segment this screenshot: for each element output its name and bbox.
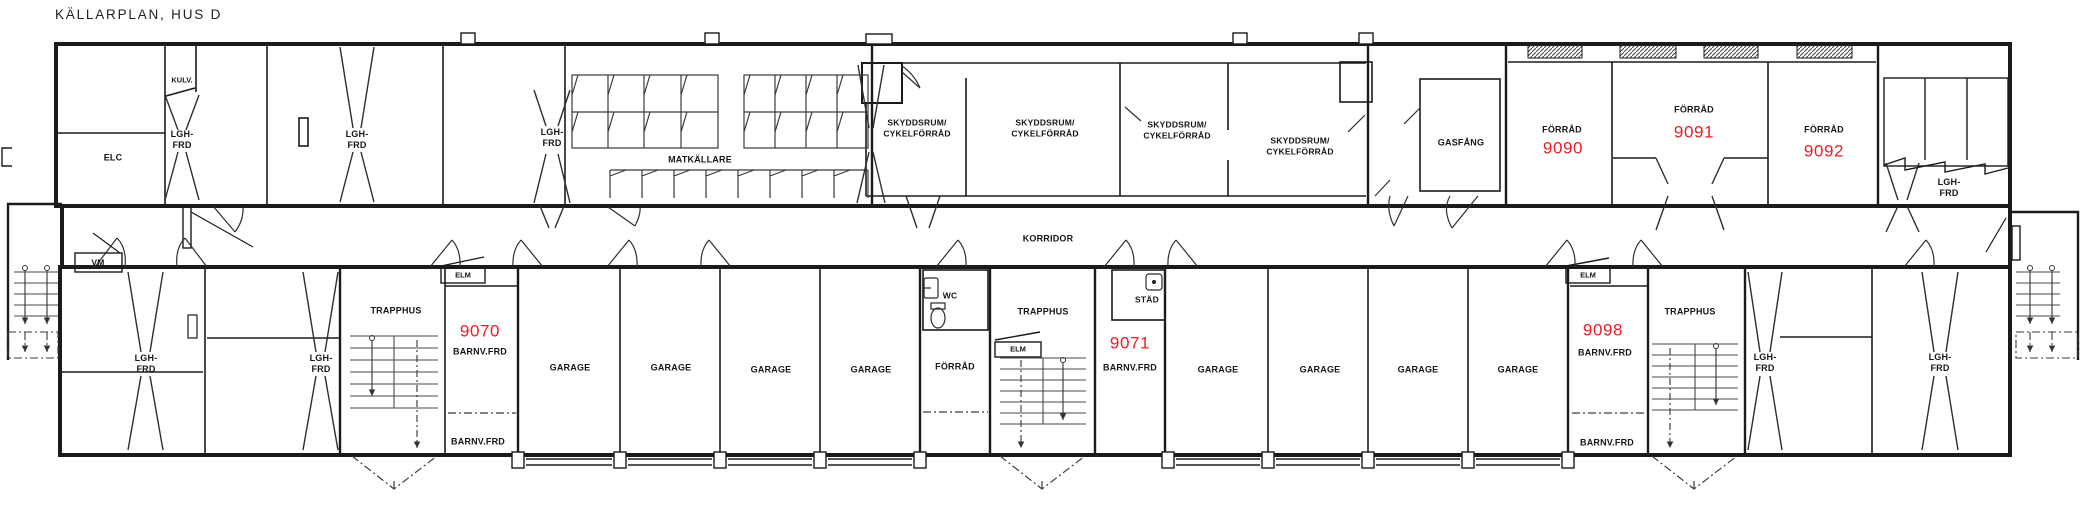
room-label-garage-3: GARAGE	[751, 364, 792, 375]
toilet-icon	[931, 308, 945, 328]
room-label-elc: ELC	[104, 152, 123, 163]
stairs-trapphus-1	[350, 336, 438, 449]
exterior-stairs-left	[8, 204, 62, 360]
room-label-trapphus-2: TRAPPHUS	[1017, 306, 1068, 317]
room-label-vm: VM	[91, 258, 104, 269]
room-label-forrad-9090: FÖRRÅD	[1542, 124, 1582, 135]
room-label-elm-2: ELM	[1010, 344, 1026, 353]
room-label-forrad-mid: FÖRRÅD	[935, 361, 975, 372]
unit-number-9071: 9071	[1110, 335, 1150, 352]
room-label-lgh-frd-2: LGH- FRD	[346, 129, 369, 152]
door-swings-corridor	[95, 238, 1934, 267]
room-label-skyddsrum-2: SKYDDSRUM/ CYKELFÖRRÅD	[1011, 117, 1078, 138]
floor-plan-drawing	[0, 0, 2094, 513]
room-label-elm-1: ELM	[455, 270, 471, 279]
room-label-kulv: KULV.	[171, 75, 192, 84]
room-label-forrad-9092: FÖRRÅD	[1804, 124, 1844, 135]
room-label-garage-4: GARAGE	[851, 364, 892, 375]
room-label-matkallare: MATKÄLLARE	[668, 154, 732, 165]
room-label-barnv-frd-1b: BARNV.FRD	[451, 436, 505, 447]
room-label-lgh-frd-7: LGH- FRD	[1754, 352, 1777, 375]
room-label-gasfang: GASFÅNG	[1438, 137, 1484, 148]
room-label-garage-8: GARAGE	[1498, 364, 1539, 375]
unit-number-9090: 9090	[1543, 140, 1583, 157]
matkallare-compartments	[572, 75, 868, 198]
room-label-lgh-frd-4: LGH- FRD	[1938, 177, 1961, 200]
unit-number-9098: 9098	[1583, 322, 1623, 339]
window-hatch	[1528, 45, 1852, 58]
room-label-skyddsrum-3: SKYDDSRUM/ CYKELFÖRRÅD	[1143, 119, 1210, 140]
room-label-garage-7: GARAGE	[1398, 364, 1439, 375]
entrance-canopies	[352, 456, 1737, 489]
stairs-trapphus-3	[1652, 344, 1738, 449]
room-label-trapphus-1: TRAPPHUS	[370, 305, 421, 316]
room-label-forrad-9091: FÖRRÅD	[1674, 104, 1714, 115]
room-label-skyddsrum-4: SKYDDSRUM/ CYKELFÖRRÅD	[1266, 135, 1333, 156]
room-label-lgh-frd-3: LGH- FRD	[541, 127, 564, 150]
exterior-stairs-right	[2012, 212, 2078, 360]
room-label-trapphus-3: TRAPPHUS	[1664, 306, 1715, 317]
stairs-trapphus-2	[1000, 358, 1086, 449]
floor-plan: KÄLLARPLAN, HUS D KULV. LGH- FRD ELC LGH…	[0, 0, 2094, 513]
room-label-lgh-frd-6: LGH- FRD	[310, 353, 333, 376]
unit-number-9091: 9091	[1674, 124, 1714, 141]
room-label-elm-3: ELM	[1580, 270, 1596, 279]
room-label-wc: WC	[943, 291, 958, 302]
room-label-garage-5: GARAGE	[1198, 364, 1239, 375]
unit-number-9092: 9092	[1804, 143, 1844, 160]
room-label-stad: STÄD	[1135, 295, 1159, 306]
room-label-barnv-frd-9070: BARNV.FRD	[453, 346, 507, 357]
room-label-lgh-frd-8: LGH- FRD	[1929, 352, 1952, 375]
room-label-skyddsrum-1: SKYDDSRUM/ CYKELFÖRRÅD	[883, 117, 950, 138]
room-label-garage-2: GARAGE	[651, 362, 692, 373]
page-title: KÄLLARPLAN, HUS D	[55, 8, 222, 22]
unit-number-9070: 9070	[460, 323, 500, 340]
room-label-garage-1: GARAGE	[550, 362, 591, 373]
room-label-barnv-frd-9098: BARNV.FRD	[1578, 347, 1632, 358]
corridor-label: KORRIDOR	[1023, 233, 1074, 244]
room-label-barnv-frd-3b: BARNV.FRD	[1580, 437, 1634, 448]
room-label-lgh-frd-1: LGH- FRD	[171, 129, 194, 152]
room-label-barnv-frd-9071: BARNV.FRD	[1103, 362, 1157, 373]
room-label-garage-6: GARAGE	[1300, 364, 1341, 375]
room-label-lgh-frd-5: LGH- FRD	[135, 353, 158, 376]
